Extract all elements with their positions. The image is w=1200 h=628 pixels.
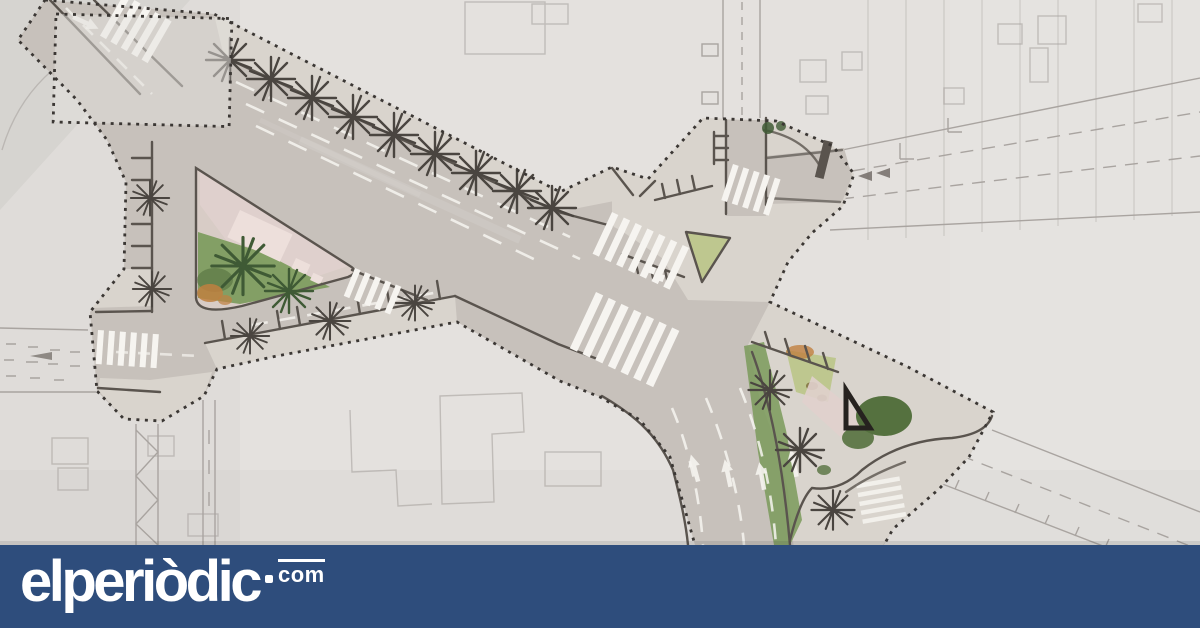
- logo-suffix: com: [265, 559, 325, 586]
- excluded-block: [53, 14, 232, 127]
- urban-plan-drawing: [0, 0, 1200, 628]
- news-card: elperiòdic com: [0, 0, 1200, 628]
- elperiodic-logo: elperiòdic com: [20, 553, 1200, 611]
- logo-tld-text: com: [278, 559, 325, 586]
- logo-text: elperiòdic: [20, 553, 259, 611]
- logo-dot-icon: [265, 575, 273, 583]
- brand-bar: elperiòdic com: [0, 545, 1200, 628]
